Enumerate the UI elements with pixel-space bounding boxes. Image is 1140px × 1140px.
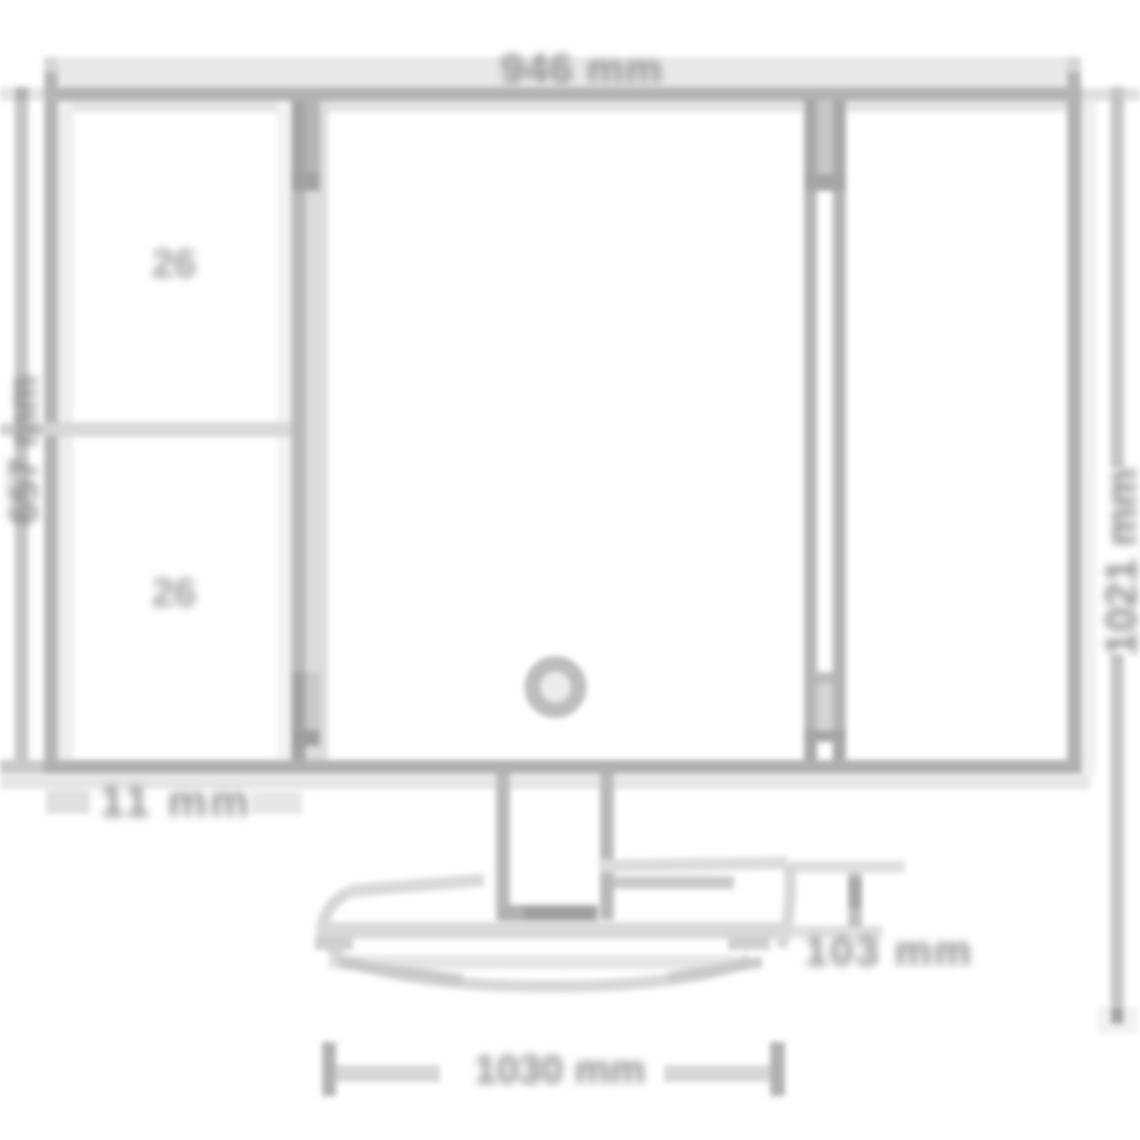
svg-text:26: 26 xyxy=(152,571,197,615)
svg-text:657 mm: 657 mm xyxy=(2,376,46,525)
svg-text:946 mm: 946 mm xyxy=(501,45,663,92)
svg-text:11 mm: 11 mm xyxy=(100,777,252,826)
svg-text:103 mm: 103 mm xyxy=(805,927,973,974)
svg-text:1030 mm: 1030 mm xyxy=(474,1048,645,1092)
svg-text:26: 26 xyxy=(152,242,197,286)
svg-text:1021 mm: 1021 mm xyxy=(1097,468,1140,656)
